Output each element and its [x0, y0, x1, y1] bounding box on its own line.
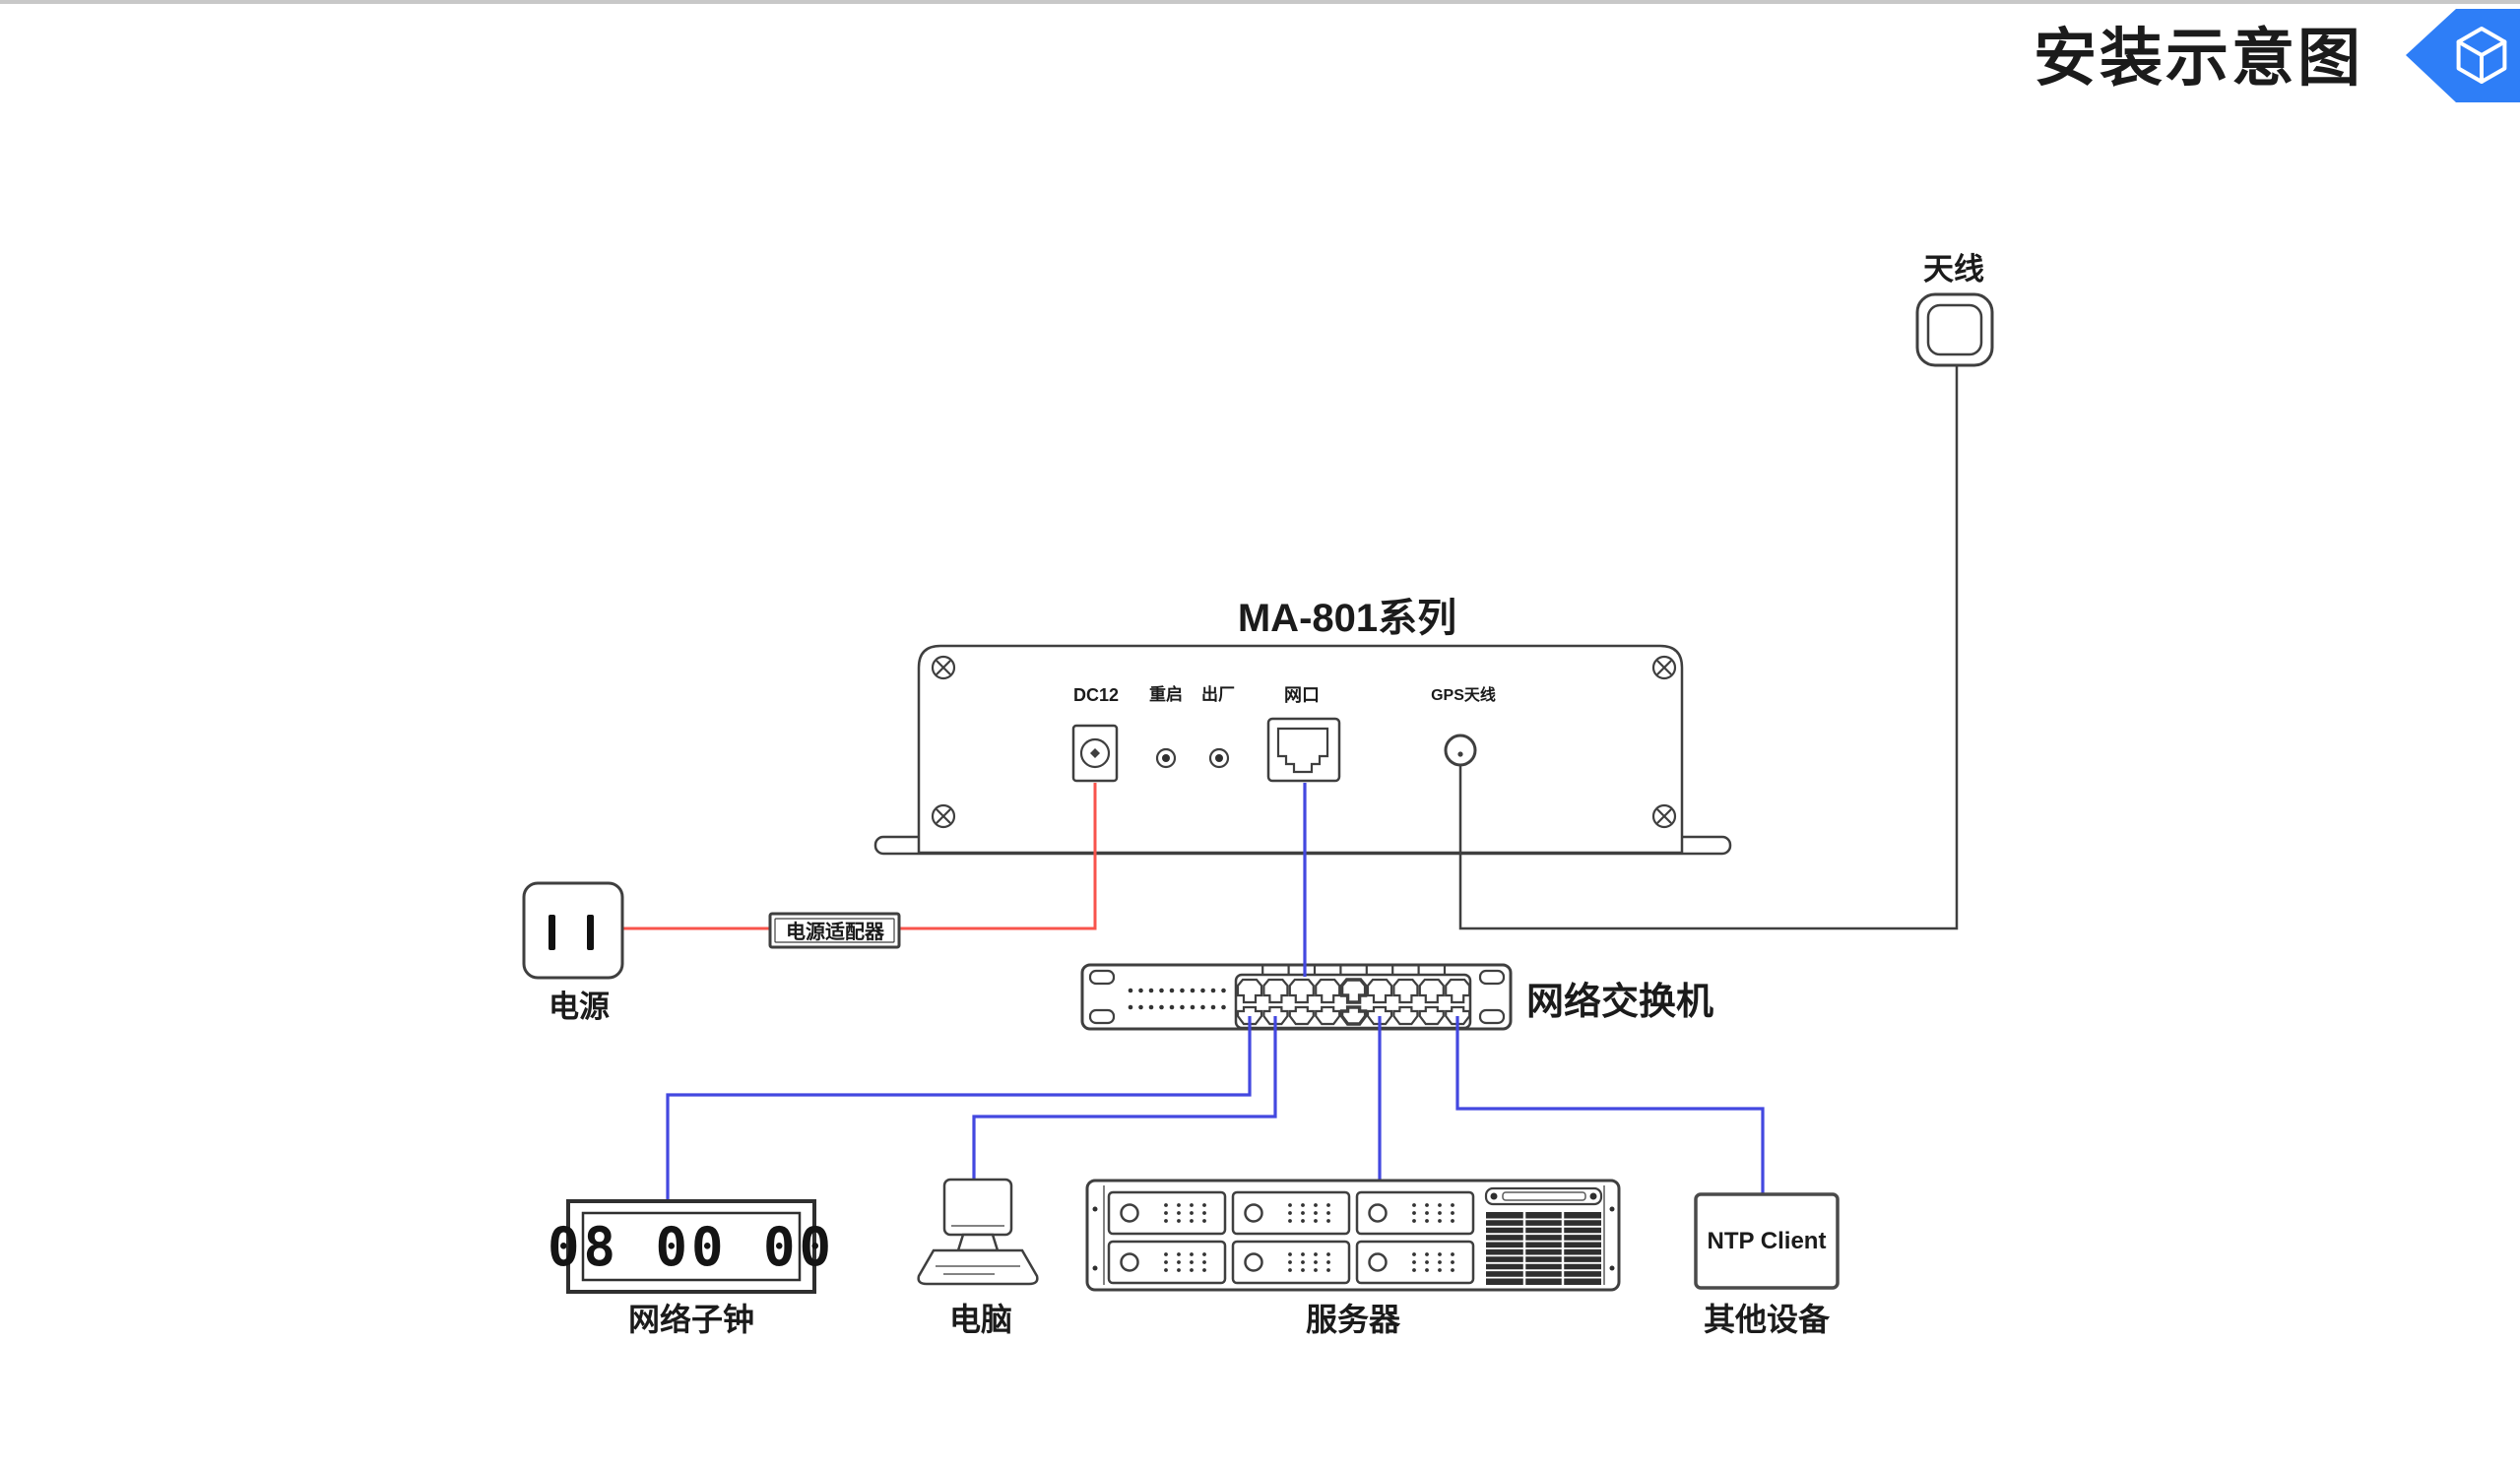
bay-dot [1438, 1203, 1442, 1207]
led-dot [1170, 1005, 1175, 1010]
outlet-slot [587, 915, 594, 950]
led-dot [1200, 1005, 1205, 1010]
server: 服务器 [1087, 1181, 1619, 1337]
ntp-wire [1457, 1016, 1763, 1194]
bay-dot [1438, 1211, 1442, 1215]
bay-dot [1451, 1211, 1454, 1215]
bay-dot [1301, 1219, 1305, 1223]
led-dot [1191, 989, 1195, 993]
clock-wire [668, 1016, 1250, 1201]
computer-wire [974, 1016, 1275, 1180]
power-adapter: 电源适配器 [770, 914, 899, 947]
bay-dot [1301, 1268, 1305, 1272]
rj45-jack-icon [1268, 719, 1339, 781]
gps-antenna: 天线 [1917, 252, 1992, 365]
bay-dot [1190, 1211, 1194, 1215]
antenna-label: 天线 [1923, 252, 1984, 287]
bay-dot [1177, 1268, 1181, 1272]
outlet-slot [549, 915, 555, 950]
bay-dot [1326, 1260, 1330, 1264]
bay-dot [1164, 1268, 1168, 1272]
network-clock: 08 00 00 网络子钟 [548, 1201, 835, 1337]
bay-dot [1438, 1260, 1442, 1264]
server-label: 服务器 [1306, 1302, 1401, 1337]
bay-dot [1451, 1260, 1454, 1264]
bay-dot [1301, 1211, 1305, 1215]
switch-label: 网络交换机 [1526, 981, 1713, 1023]
led-dot [1180, 1005, 1185, 1010]
gps-label: GPS天线 [1431, 685, 1496, 704]
bay-dot [1177, 1252, 1181, 1256]
led-dot [1170, 989, 1175, 993]
bay-dot [1314, 1219, 1318, 1223]
bay-dot [1451, 1219, 1454, 1223]
bay-dot [1164, 1211, 1168, 1215]
bay-dot [1438, 1268, 1442, 1272]
dc-jack-icon [1073, 726, 1117, 781]
bay-dot [1288, 1268, 1292, 1272]
bay-dot [1326, 1203, 1330, 1207]
bay-dot [1412, 1268, 1416, 1272]
led-dot [1138, 1005, 1143, 1010]
led-dot [1211, 989, 1216, 993]
led-dot [1129, 989, 1133, 993]
bay-dot [1438, 1252, 1442, 1256]
bay-dot [1326, 1252, 1330, 1256]
reset-label: 重启 [1149, 684, 1183, 704]
bay-dot [1326, 1219, 1330, 1223]
bay-dot [1190, 1260, 1194, 1264]
led-dot [1180, 989, 1185, 993]
bay-dot [1451, 1252, 1454, 1256]
bay-dot [1425, 1211, 1429, 1215]
led-dot [1221, 1005, 1226, 1010]
bay-dot [1164, 1203, 1168, 1207]
led-dot [1211, 1005, 1216, 1010]
ma801-device: MA-801系列 DC12 重启 出厂 网口 GPS天线 [875, 597, 1730, 854]
keyboard-base-icon [919, 1250, 1038, 1284]
led-dot [1159, 1005, 1164, 1010]
bay-dot [1190, 1252, 1194, 1256]
bay-dot [1425, 1260, 1429, 1264]
computer: 电脑 [919, 1180, 1038, 1337]
bay-dot [1412, 1252, 1416, 1256]
bay-dot [1190, 1219, 1194, 1223]
bay-dot [1190, 1268, 1194, 1272]
bay-dot [1288, 1252, 1292, 1256]
bay-dot [1438, 1219, 1442, 1223]
power-outlet: 电源 [524, 883, 622, 1024]
bay-dot [1202, 1211, 1206, 1215]
power-label: 电源 [549, 990, 610, 1024]
computer-label: 电脑 [949, 1302, 1012, 1337]
page-title: 安装示意图 [2034, 23, 2363, 94]
led-dot [1149, 989, 1154, 993]
bay-dot [1177, 1219, 1181, 1223]
bay-dot [1164, 1252, 1168, 1256]
bay-dot [1301, 1252, 1305, 1256]
ntp-box-text: NTP Client [1708, 1228, 1827, 1254]
led-dot [1129, 1005, 1133, 1010]
window-top-border [0, 0, 2520, 4]
bay-dot [1164, 1219, 1168, 1223]
bay-dot [1288, 1219, 1292, 1223]
led-dot [1191, 1005, 1195, 1010]
led-dot [1200, 989, 1205, 993]
other-devices-label: 其他设备 [1704, 1302, 1831, 1337]
bay-dot [1301, 1260, 1305, 1264]
ma801-title: MA-801系列 [1238, 597, 1456, 640]
bay-dot [1314, 1203, 1318, 1207]
bay-dot [1202, 1268, 1206, 1272]
installation-diagram-page: 安装示意图 MA-801系列 DC12 重启 出厂 网口 GPS天线 [0, 0, 2520, 1470]
gps-connector-icon [1446, 735, 1475, 765]
bay-dot [1202, 1252, 1206, 1256]
bay-dot [1326, 1211, 1330, 1215]
network-switch: 网络交换机 [1082, 965, 1713, 1029]
bay-dot [1164, 1260, 1168, 1264]
clock-time: 08 00 00 [548, 1216, 835, 1278]
led-dot [1221, 989, 1226, 993]
bay-dot [1412, 1211, 1416, 1215]
bay-dot [1451, 1268, 1454, 1272]
bay-dot [1314, 1252, 1318, 1256]
brand-badge [2406, 9, 2520, 102]
bay-dot [1314, 1211, 1318, 1215]
lan-label: 网口 [1284, 685, 1320, 705]
bay-dot [1177, 1203, 1181, 1207]
led-dot [1149, 1005, 1154, 1010]
bay-dot [1412, 1260, 1416, 1264]
clock-label: 网络子钟 [628, 1302, 754, 1337]
bay-dot [1412, 1219, 1416, 1223]
bay-dot [1288, 1260, 1292, 1264]
bay-dot [1326, 1268, 1330, 1272]
bay-dot [1425, 1268, 1429, 1272]
led-dot [1159, 989, 1164, 993]
bay-dot [1425, 1203, 1429, 1207]
bay-dot [1288, 1211, 1292, 1215]
adapter-label: 电源适配器 [786, 921, 885, 943]
vent-grille-icon [1486, 1212, 1601, 1285]
bay-dot [1177, 1260, 1181, 1264]
bay-dot [1288, 1203, 1292, 1207]
bay-dot [1425, 1252, 1429, 1256]
bay-dot [1301, 1203, 1305, 1207]
led-dot [1138, 989, 1143, 993]
factory-label: 出厂 [1201, 684, 1235, 704]
bay-dot [1177, 1211, 1181, 1215]
ntp-client-device: NTP Client 其他设备 [1696, 1194, 1838, 1337]
bay-dot [1451, 1203, 1454, 1207]
bay-dot [1314, 1260, 1318, 1264]
bay-dot [1425, 1219, 1429, 1223]
bay-dot [1190, 1203, 1194, 1207]
bay-dot [1202, 1219, 1206, 1223]
bay-dot [1202, 1260, 1206, 1264]
bay-dot [1412, 1203, 1416, 1207]
bay-dot [1314, 1268, 1318, 1272]
dc12-label: DC12 [1073, 685, 1119, 705]
bay-dot [1202, 1203, 1206, 1207]
